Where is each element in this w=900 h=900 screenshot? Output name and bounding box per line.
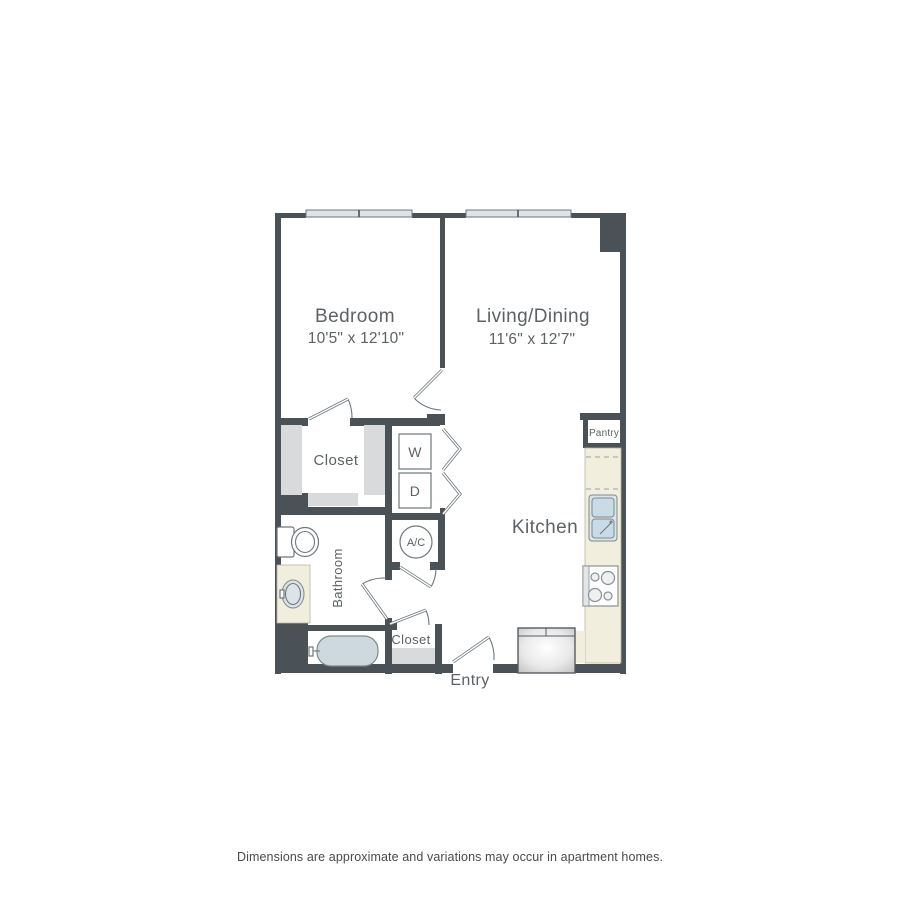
closet-label: Closet — [314, 452, 359, 469]
disclaimer-text: Dimensions are approximate and variation… — [237, 850, 663, 864]
bedroom-door — [414, 370, 442, 410]
entry-door — [453, 637, 494, 662]
bathtub-icon — [309, 636, 378, 666]
washer-label: W — [408, 444, 422, 460]
kitchen-counter — [575, 448, 621, 663]
entry-closet-label: Closet — [391, 632, 430, 647]
toilet-icon — [277, 527, 319, 557]
bathroom-label: Bathroom — [330, 548, 345, 608]
column — [600, 217, 626, 252]
kitchen-label: Kitchen — [512, 517, 578, 538]
washer-dryer-bifold-doors — [443, 429, 460, 514]
walls — [275, 213, 626, 674]
stove-icon — [583, 566, 618, 606]
bedroom-label: Bedroom — [315, 306, 395, 327]
living-dining-label: Living/Dining — [476, 306, 590, 327]
bedroom-closet-door — [309, 399, 352, 419]
entry-label: Entry — [450, 672, 489, 689]
bedroom-dimensions: 10'5" x 12'10" — [308, 330, 404, 347]
floor-plan: Bedroom 10'5" x 12'10" Living/Dining 11'… — [0, 0, 900, 900]
kitchen-sink-icon — [589, 495, 617, 541]
pantry-label: Pantry — [589, 428, 619, 439]
dryer-label: D — [410, 483, 421, 499]
page: Bedroom 10'5" x 12'10" Living/Dining 11'… — [0, 0, 900, 900]
bathroom-door — [362, 578, 387, 619]
ac-label: A/C — [407, 537, 425, 549]
living-dining-dimensions: 11'6" x 12'7" — [489, 331, 575, 348]
refrigerator-icon — [518, 628, 575, 673]
entry-closet-door — [390, 610, 429, 625]
